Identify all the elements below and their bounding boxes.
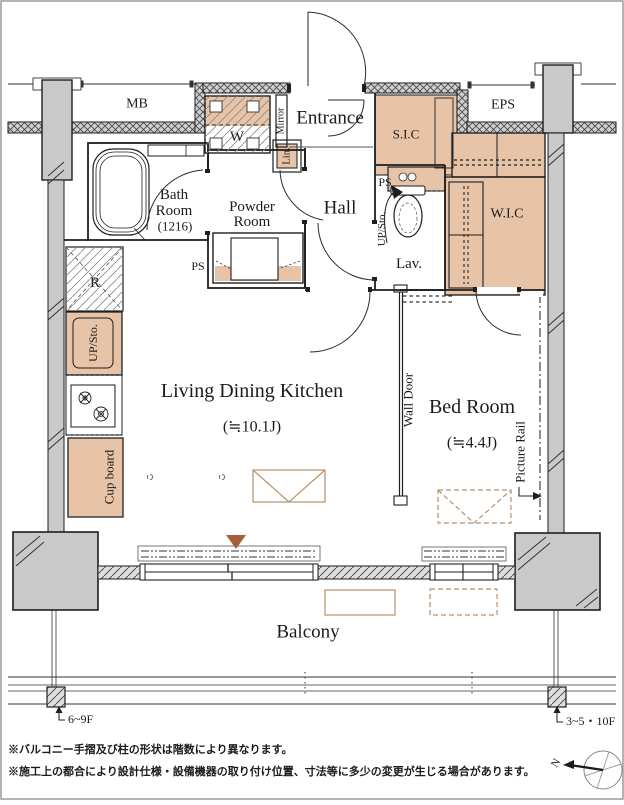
bedroom-label-1: Bed Room [429,396,516,418]
floor-plan-page: MB EPS Entrance S.I.C W.I.C W Mirror Lin… [0,0,624,800]
bedroom-label-2: (≒4.4J) [447,435,497,452]
footnote-2: ※施工上の都合により設計仕様・設備機器の取り付け位置、寸法等に多少の変更が生じる… [8,764,535,778]
washer-label: W [230,129,245,145]
basin-sink [231,238,278,280]
wall-strip-left [48,180,64,532]
linen-label: Lin. [282,147,293,164]
wall-top-left-stub [8,122,42,133]
balcony-label: Balcony [276,622,340,643]
up-sto-label-lav: UP/Sto. [376,211,388,246]
cupboard-label: Cup board [102,449,117,504]
ps-label-2: PS [378,175,391,189]
column-bottom-right [515,533,600,610]
footnote-1: ※バルコニー手摺及び柱の形状は階数により異なります。 [8,742,292,756]
hall-label: Hall [324,198,357,219]
toilet-bowl [394,195,422,237]
entrance-label: Entrance [296,108,364,129]
bath-label-2: Room [156,203,193,219]
ps-label-1: PS [191,259,204,273]
wall-door-label: Wall Door [401,372,416,427]
wall-below-eps [467,122,545,133]
up-sto-label-kitchen: UP/Sto. [86,324,100,362]
floors-left-label: 6~9F [68,712,93,726]
lav-label: Lav. [396,256,422,272]
wall-top-entrance-right [365,83,460,93]
rail-post-right [548,687,566,707]
mirror-label: Mirror [276,107,287,134]
ldk-label-1: Living Dining Kitchen [161,380,343,402]
floor-plan-svg: MB EPS Entrance S.I.C W.I.C W Mirror Lin… [0,0,624,800]
ldk-label-2: (≒10.1J) [223,419,281,436]
floors-right-label: 3~5・10F [566,714,615,728]
column-top-right [543,65,573,133]
wall-strip-right [548,133,564,533]
eps-label: EPS [491,98,515,113]
powder-label-1: Powder [229,199,275,215]
fridge-label: R [90,275,100,291]
bath-label-3: (1216) [158,219,193,234]
picture-rail-label: Picture Rail [513,421,528,483]
wic-label: W.I.C [491,207,524,222]
column-bottom-left [13,532,98,610]
basin-counter [213,233,303,283]
powder-label-2: Room [234,214,271,230]
wall-below-mb [72,122,195,133]
wall-top-right-stub [571,122,616,133]
wall-eps-left [457,90,468,133]
wic-upper-cabinet [452,133,545,177]
bath-label-1: Bath [160,187,189,203]
wall-top-entrance-left [203,83,290,93]
rail-post-left [47,687,65,707]
mb-label: MB [126,97,148,112]
column-top-left [42,80,72,180]
sic-label: S.I.C [393,127,420,142]
wic-closet [445,177,545,295]
